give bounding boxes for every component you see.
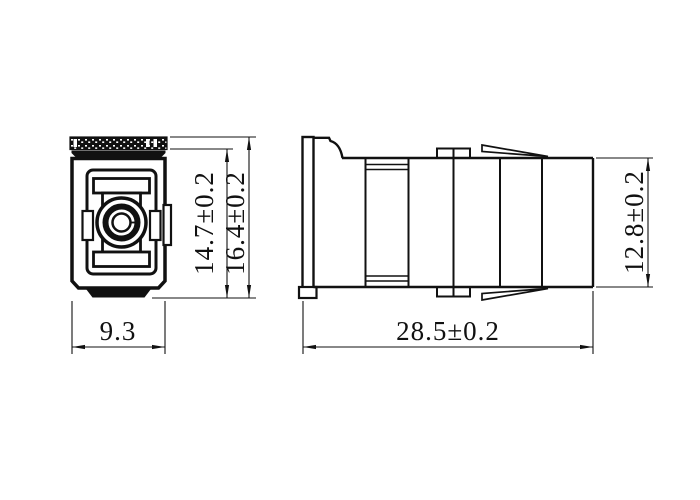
dim-front-width: 9.3 xyxy=(72,301,165,354)
snap-latch-bottom xyxy=(482,289,548,301)
arrowhead-right xyxy=(152,345,165,349)
dim-text-front-outer-height: 16.4±0.2 xyxy=(220,171,250,275)
arrowhead-right xyxy=(580,345,593,349)
drawing-canvas: 14.7±0.2 16.4±0.2 9.3 xyxy=(0,0,700,500)
arrowhead-left xyxy=(72,345,85,349)
dim-text-front-inner-height: 14.7±0.2 xyxy=(189,171,219,275)
front-view: 14.7±0.2 16.4±0.2 9.3 xyxy=(70,137,256,354)
arrowhead-down xyxy=(247,285,251,298)
side-latch-bump xyxy=(164,205,172,245)
arrowhead-left xyxy=(303,345,316,349)
arrowhead-up xyxy=(225,149,229,162)
port-bar-top-wide xyxy=(94,179,150,194)
cap-slot-right-2 xyxy=(154,139,158,147)
technical-drawing: 14.7±0.2 16.4±0.2 9.3 xyxy=(0,0,700,500)
flange-plate xyxy=(303,137,314,290)
arrowhead-up xyxy=(646,158,650,171)
dim-text-side-height: 12.8±0.2 xyxy=(619,170,649,274)
dim-text-front-width: 9.3 xyxy=(100,316,137,346)
cap-slot-right-1 xyxy=(146,139,150,147)
front-bottom-tab xyxy=(86,289,151,298)
flange-foot xyxy=(299,287,317,298)
flange-lip xyxy=(314,138,343,158)
side-view: 28.5±0.2 12.8±0.2 xyxy=(299,137,653,354)
port-slot-left xyxy=(83,211,94,240)
snap-latch-top xyxy=(482,145,548,157)
dim-text-side-length: 28.5±0.2 xyxy=(396,316,500,346)
port-bar-bottom-wide xyxy=(94,252,150,267)
arrowhead-down xyxy=(646,274,650,287)
cap-band xyxy=(72,151,166,159)
arrowhead-down xyxy=(225,285,229,298)
sleeve-bore xyxy=(113,214,131,232)
arrowhead-up xyxy=(247,137,251,150)
knurled-cap xyxy=(70,137,167,150)
cap-slot-left xyxy=(74,139,78,147)
dim-side-height: 12.8±0.2 xyxy=(596,158,653,287)
port-slot-right xyxy=(150,211,161,240)
dim-side-length: 28.5±0.2 xyxy=(303,291,593,354)
